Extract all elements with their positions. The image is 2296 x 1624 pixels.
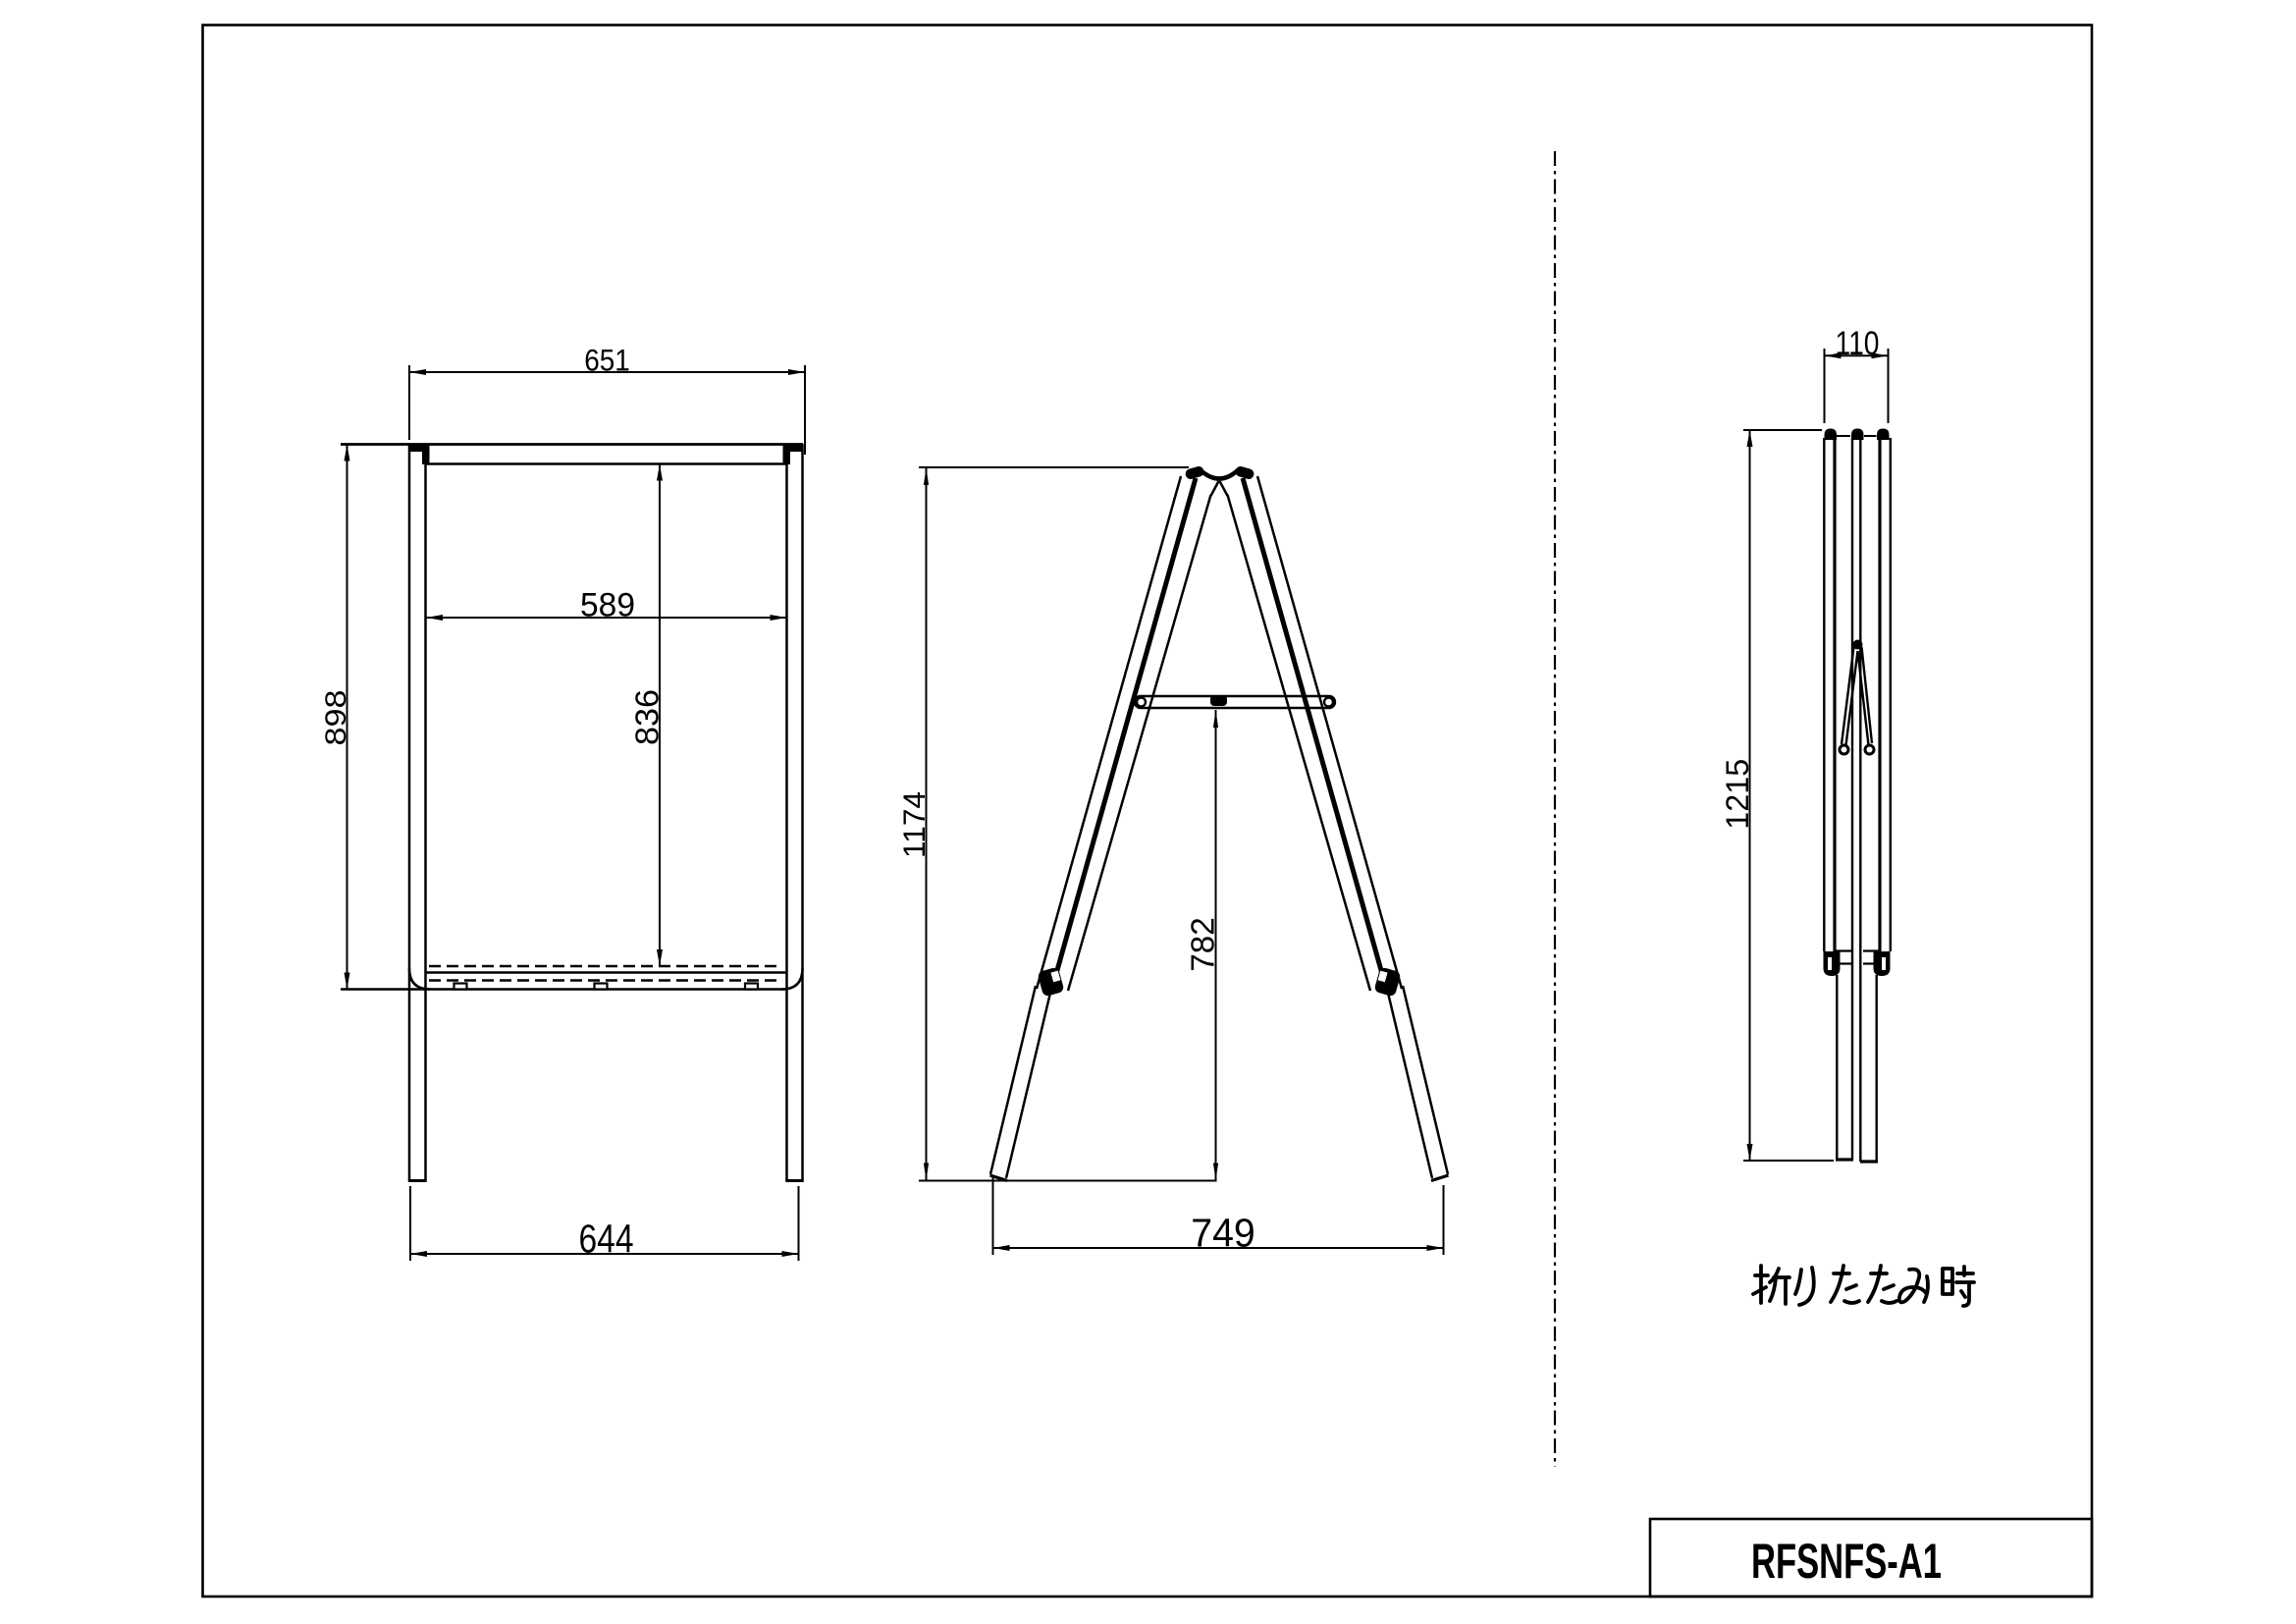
svg-text:651: 651 — [584, 343, 630, 378]
svg-text:1174: 1174 — [896, 791, 932, 858]
svg-text:782: 782 — [1185, 917, 1221, 972]
svg-text:110: 110 — [1836, 325, 1880, 362]
svg-text:644: 644 — [579, 1217, 634, 1262]
svg-text:RFSNFS-A1: RFSNFS-A1 — [1751, 1534, 1942, 1589]
svg-text:589: 589 — [580, 587, 635, 624]
svg-text:836: 836 — [629, 689, 666, 745]
svg-text:898: 898 — [320, 690, 352, 746]
svg-text:749: 749 — [1191, 1211, 1255, 1256]
svg-text:1215: 1215 — [1720, 759, 1755, 830]
